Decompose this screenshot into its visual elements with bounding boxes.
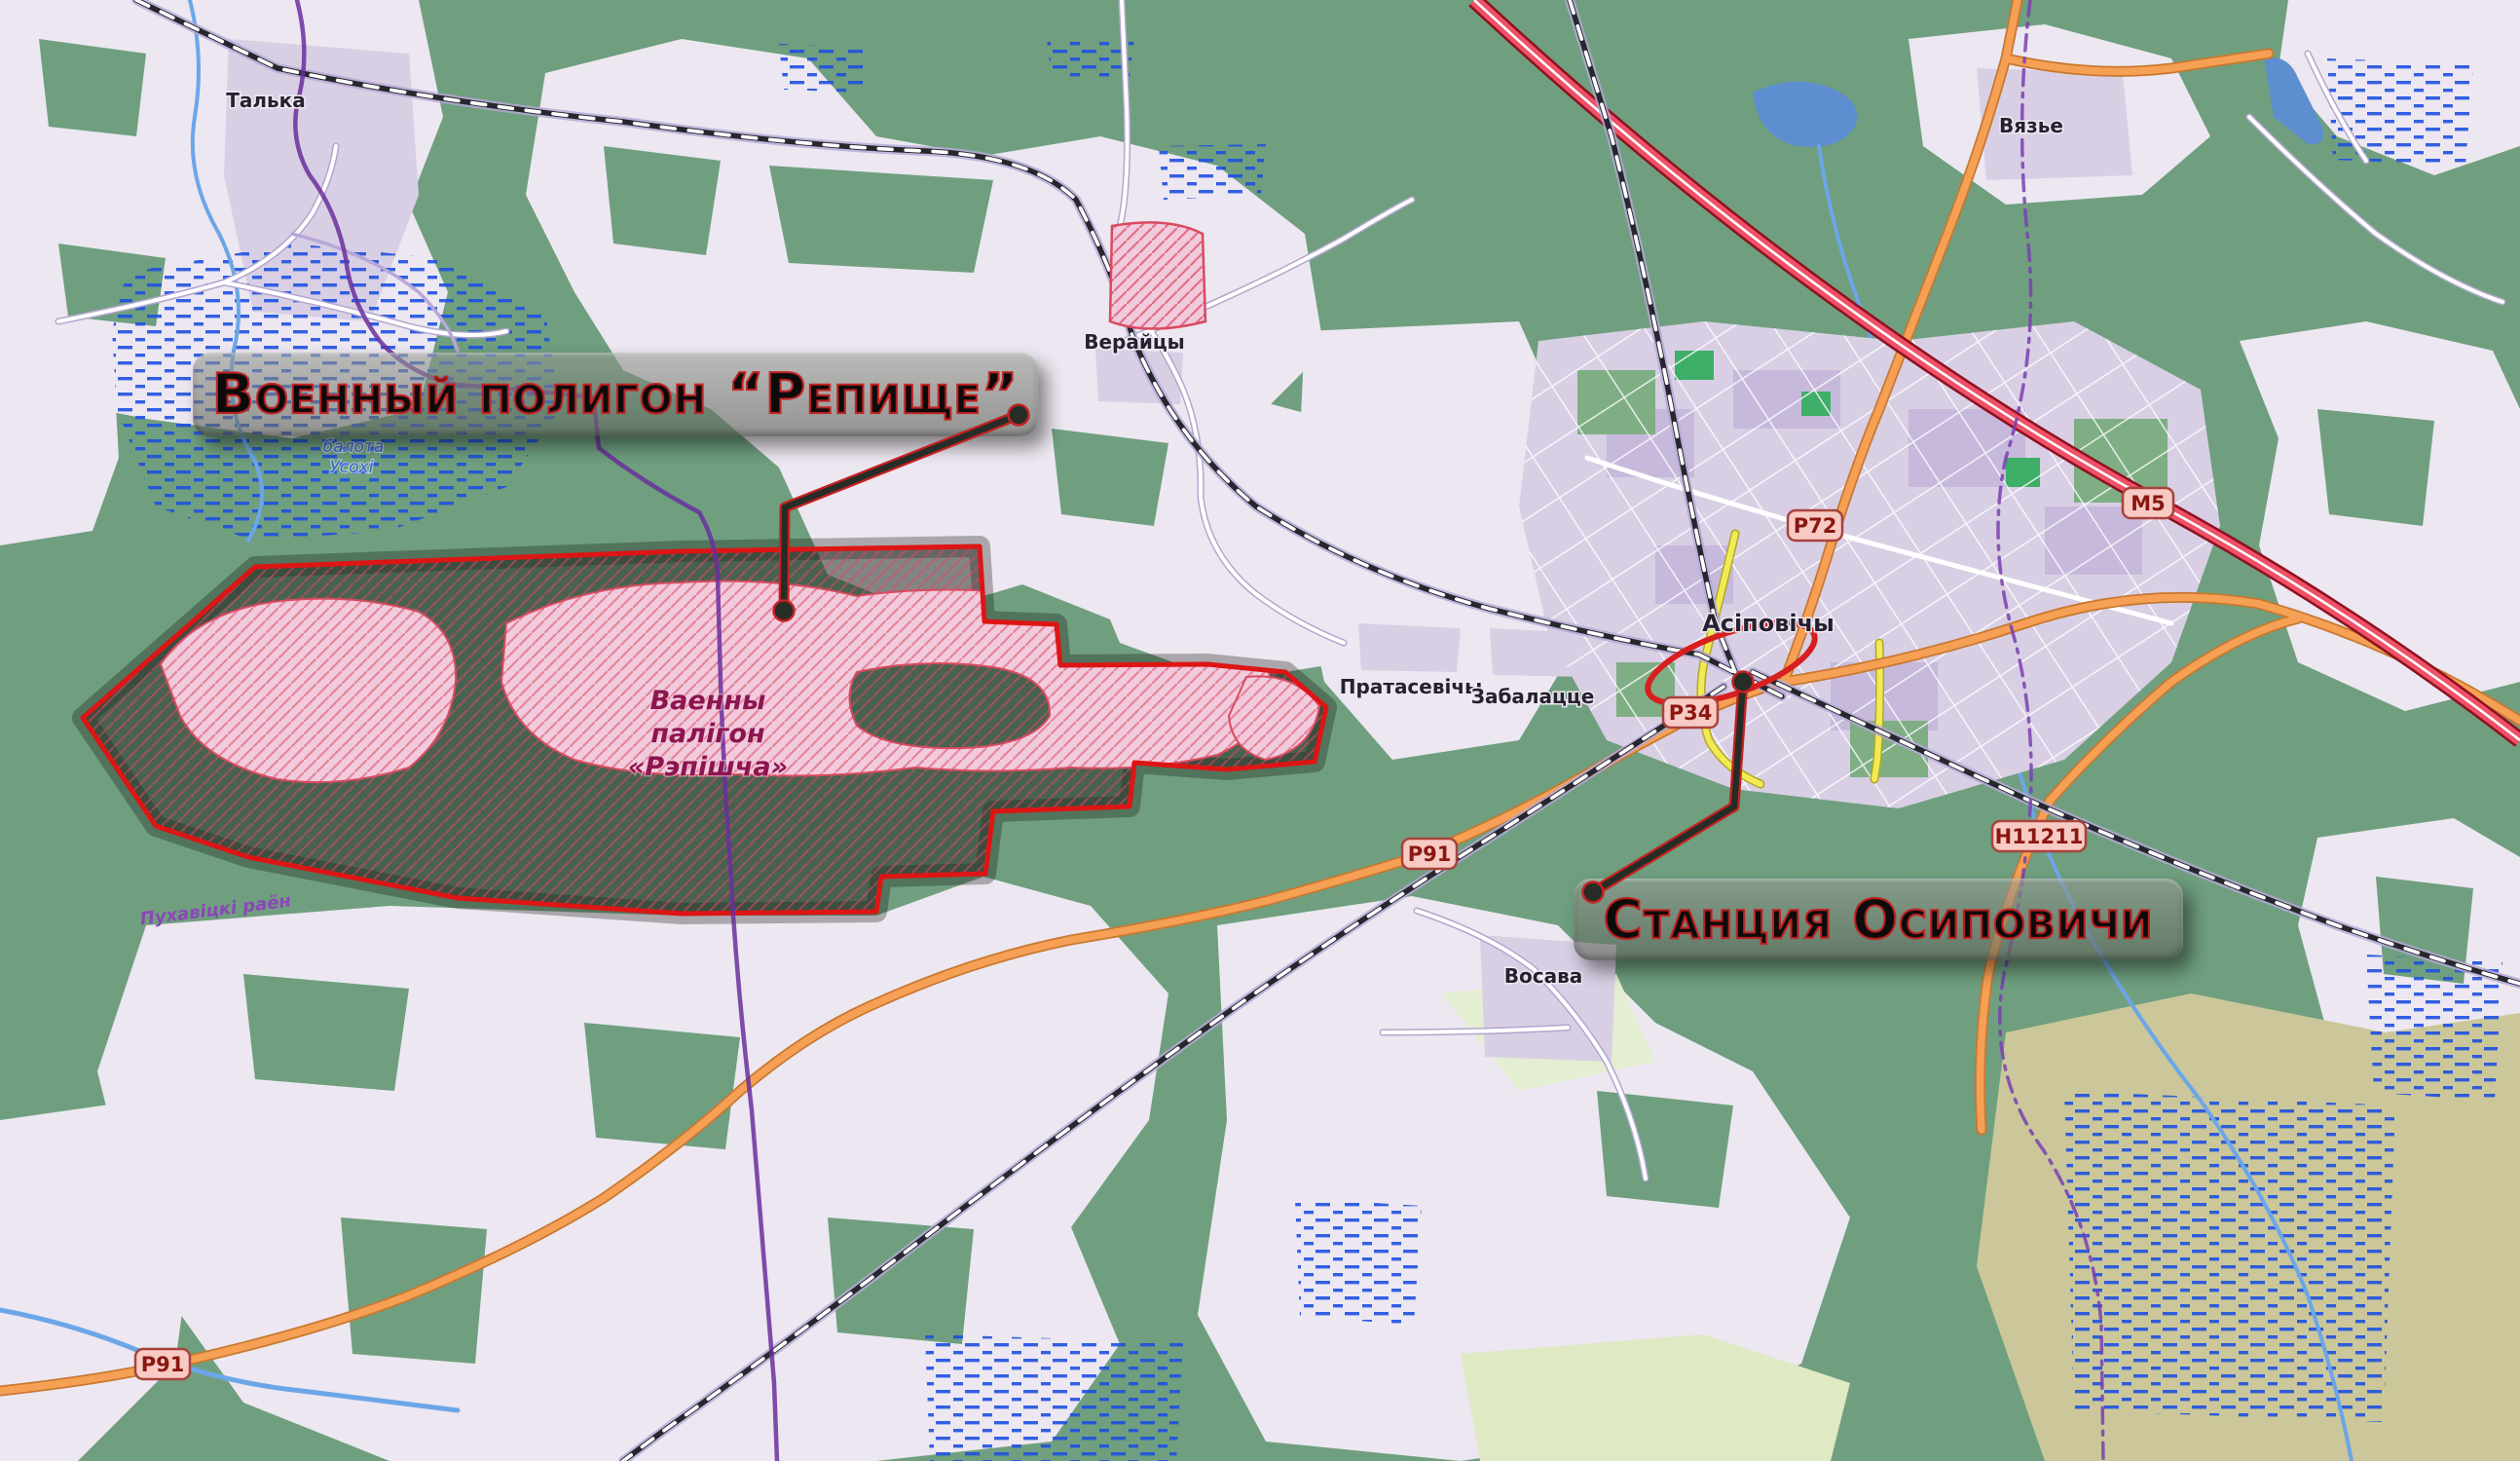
place-label-vosava: Восава (1504, 964, 1583, 988)
svg-text:Р91: Р91 (1408, 843, 1452, 866)
place-label-zabalacce: Забалацце (1471, 685, 1595, 708)
place-label-asipovichy: Асіповічы (1702, 610, 1834, 637)
road-shield-p91-southwest: Р91 (135, 1349, 190, 1379)
place-label-verajcy: Верайцы (1084, 330, 1185, 354)
marsh-name-line1: балота (323, 437, 385, 457)
road-shield-p34: Р34 (1663, 697, 1718, 728)
svg-text:М5: М5 (2131, 492, 2166, 515)
military-area-name-line1: Ваенны (650, 686, 766, 716)
place-label-pratasevichy: Пратасевічы (1340, 675, 1482, 698)
road-shield-m5: М5 (2123, 488, 2173, 518)
road-shield-p72: Р72 (1788, 510, 1842, 541)
place-label-vyazye: Вязье (1999, 114, 2063, 137)
svg-text:Н11211: Н11211 (1995, 825, 2084, 848)
annotated-map[interactable]: Талька Верайцы Вязье Асіповічы Пратасеві… (0, 0, 2520, 1461)
military-area-name-line2: палігон (650, 719, 764, 749)
svg-text:Р91: Р91 (141, 1353, 185, 1376)
svg-text:Р72: Р72 (1794, 514, 1837, 538)
danger-area-northeast (1110, 222, 1205, 328)
road-shield-h11211: Н11211 (1992, 821, 2086, 851)
annotation-polygon-label: Военный полигон “Репище” (193, 353, 1038, 436)
marsh-name-line2: Усохі (330, 458, 374, 477)
place-label-talka: Талька (226, 89, 306, 112)
road-shield-p91-east: Р91 (1402, 839, 1457, 869)
svg-text:Р34: Р34 (1669, 701, 1713, 725)
military-area-name-line3: «Рэпішча» (628, 752, 788, 782)
annotation-station-label: Станция Осиповичи (1574, 879, 2183, 960)
base-map-canvas[interactable]: Талька Верайцы Вязье Асіповічы Пратасеві… (0, 0, 2520, 1461)
